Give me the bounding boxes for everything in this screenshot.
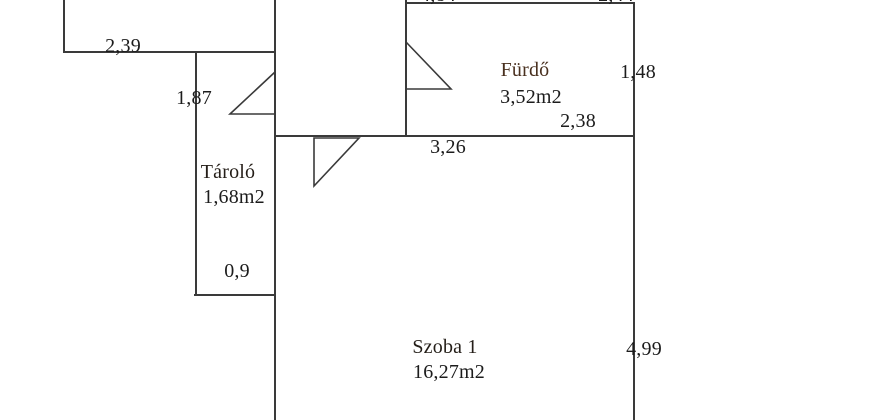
dimension-label-top-cut-left: 4,84 (420, 0, 456, 6)
room-label-furdo: Fürdő (501, 59, 550, 81)
door-swing-furdo-icon (406, 42, 451, 89)
dimension-label-furdo-bottom: 2,38 (560, 110, 596, 132)
dimension-label-szoba1-top: 3,26 (430, 136, 466, 158)
dimension-label-topleft-width: 2,39 (105, 35, 141, 57)
dimension-label-szoba1-right: 4,99 (626, 338, 662, 360)
area-label-szoba1: 16,27m2 (413, 361, 485, 383)
floor-plan: 2,39 1,87 0,9 3,26 2,38 1,48 4,99 4,84 2… (0, 0, 870, 420)
door-swing-tarolo-icon (230, 72, 275, 114)
room-label-tarolo: Tároló (201, 161, 256, 183)
dimension-label-tarolo-height: 1,87 (176, 87, 212, 109)
dimension-label-top-cut-right: 2,44 (598, 0, 634, 6)
door-swing-szoba1-icon (314, 138, 359, 186)
area-label-furdo: 3,52m2 (500, 86, 562, 108)
area-label-tarolo: 1,68m2 (203, 186, 265, 208)
room-label-szoba1: Szoba 1 (412, 336, 477, 358)
dimension-label-furdo-right: 1,48 (620, 61, 656, 83)
dimension-label-tarolo-bottom: 0,9 (224, 260, 250, 282)
